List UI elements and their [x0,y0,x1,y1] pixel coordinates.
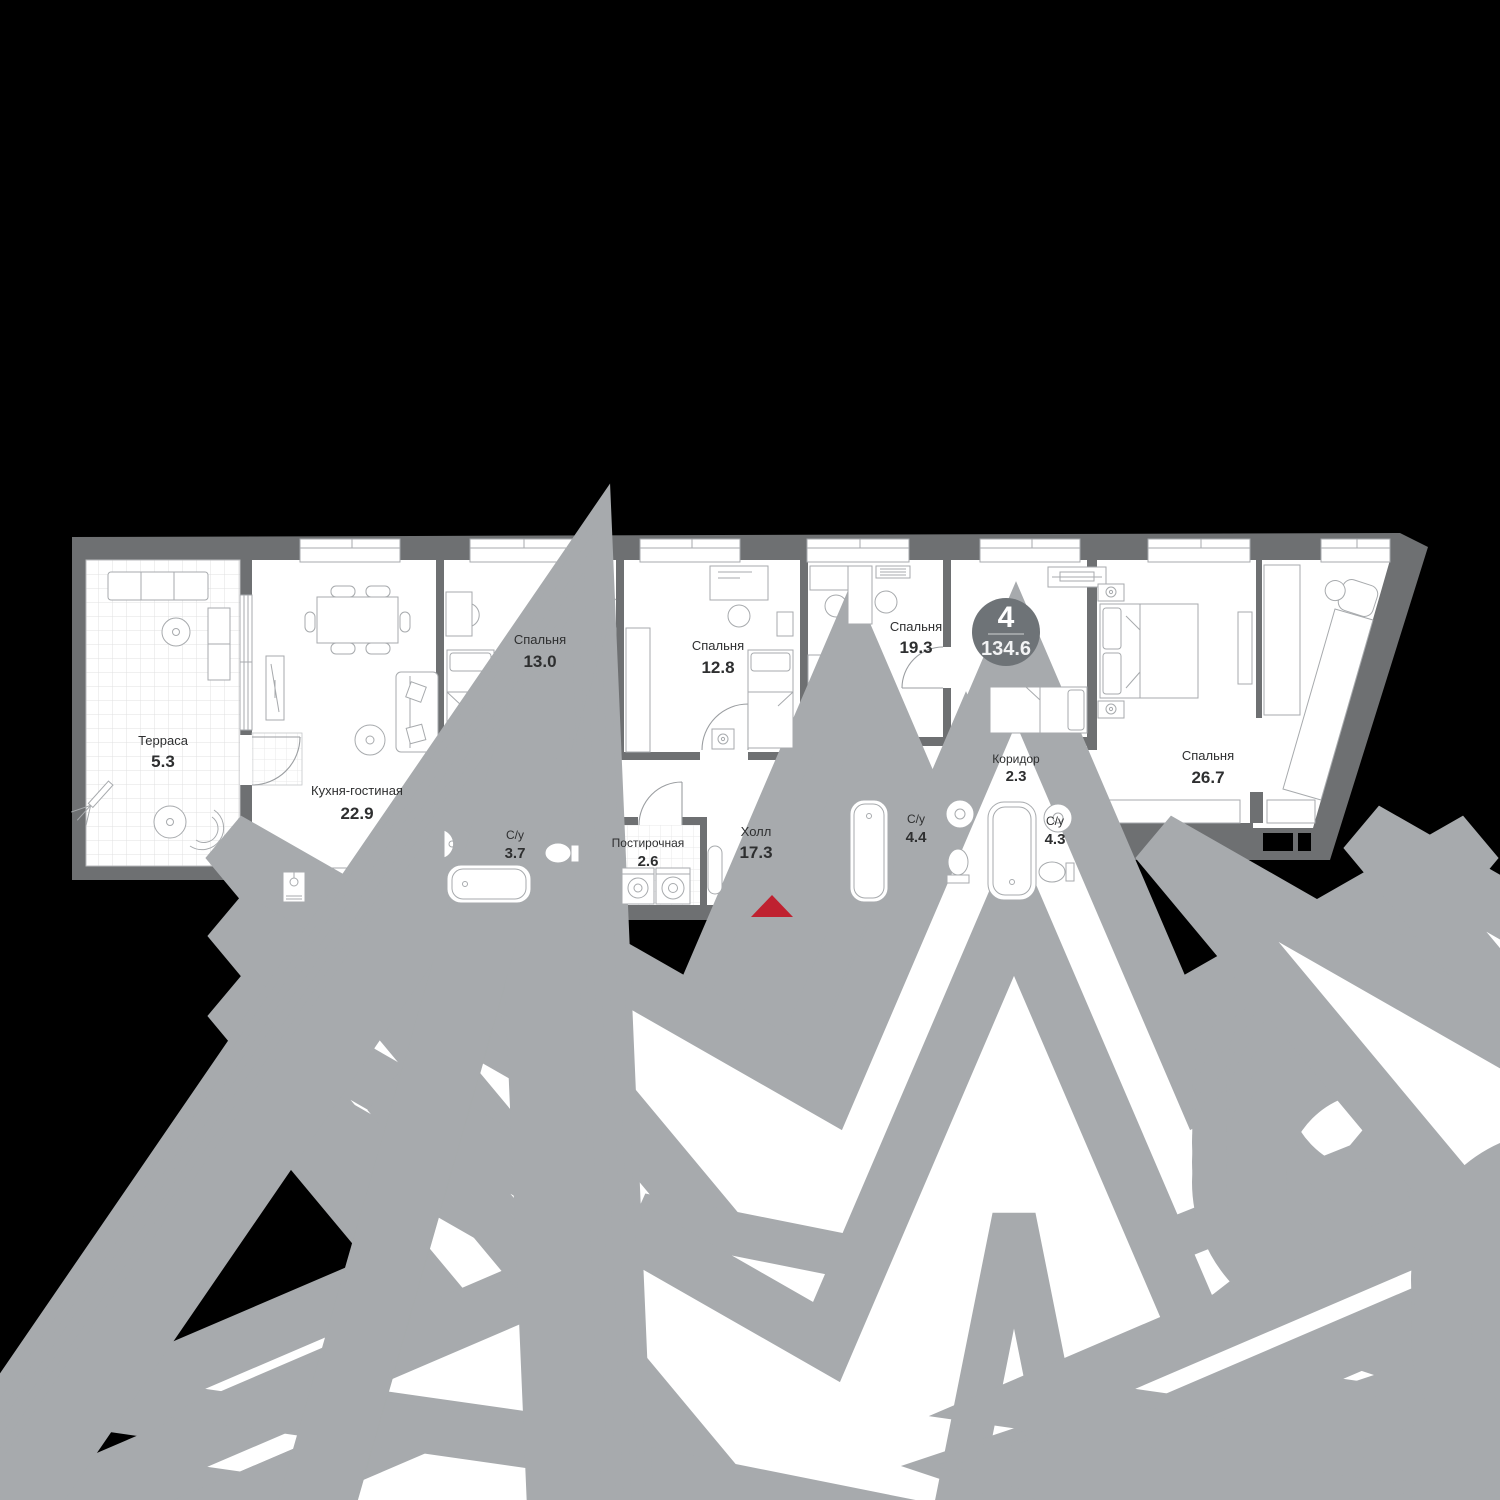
toilet-icon [1039,862,1074,882]
room-label-bedroom19: Спальня [890,619,942,634]
room-label-laundry: Постирочная [612,836,685,850]
room-label-bedroom13: Спальня [514,632,566,647]
total-area: 134.6 [981,638,1031,660]
window-icon [640,539,740,562]
room-area-bath37: 3.7 [505,845,526,862]
room-label-bedroom26: Спальня [1182,748,1234,763]
room-area-hall: 17.3 [739,843,772,862]
room-area-laundry: 2.6 [638,853,659,870]
room-label-bath43: С/у [1046,814,1064,828]
window-icon [980,539,1080,562]
bed-icon [990,687,1087,733]
room-label-bath37: С/у [506,828,524,842]
washing-machine-icon [622,868,654,904]
room-area-terrace: 5.3 [151,752,175,771]
round-table-icon [162,618,190,646]
dresser-icon [1238,612,1252,684]
bed-icon [748,650,793,748]
floor-plan: 4 134.6 Терраса 5.3 Кухня-гостиная 22.9 … [0,0,1500,1500]
room-label-corridor: Коридор [992,752,1040,766]
sofa-icon [108,572,208,600]
nightstand-icon [1098,584,1124,601]
room-label-hall: Холл [741,824,772,839]
laundry-furniture [622,868,690,904]
tv-console-icon [266,656,284,720]
room-area-corridor: 2.3 [1006,768,1027,785]
room-area-bedroom19: 19.3 [899,638,932,657]
washing-machine-icon [656,868,690,904]
shelf-icon [777,612,793,636]
wall-dressing-divider [1256,560,1262,718]
window-icon [300,539,400,562]
window-icon [807,539,909,562]
room-label-bedroom12: Спальня [692,638,744,653]
terrace-glazing [240,595,252,730]
bathtub-icon [850,800,888,902]
coffee-table-icon [355,725,385,755]
room-area-bath44: 4.4 [906,829,928,846]
room-label-bath44: С/у [907,812,925,826]
window-icon [1148,539,1250,562]
room-area-bedroom12: 12.8 [701,658,734,677]
toilet-icon [545,843,579,863]
sofa-icon [396,672,438,752]
tv-console-icon [1048,567,1106,587]
room-area-bedroom13: 13.0 [523,652,556,671]
room-area-bath43: 4.3 [1045,831,1066,848]
room-area-kitchen: 22.9 [340,804,373,823]
nightstand-icon [1098,701,1124,718]
bathtub-icon [988,802,1036,900]
bathtub-icon [447,865,531,903]
lounge-table-icon [154,806,186,838]
total-area-badge: 4 134.6 [972,598,1040,666]
room-label-terrace: Терраса [138,733,189,748]
window-icon [1321,539,1390,562]
room-label-kitchen: Кухня-гостиная [311,783,403,798]
cabinet-icon [708,846,722,894]
room-area-bedroom26: 26.7 [1191,768,1224,787]
rooms-count: 4 [998,601,1015,634]
nightstand-icon [712,729,734,749]
toilet-icon [947,849,969,883]
wall-nub [1250,792,1263,823]
double-bed-icon [1100,604,1198,698]
floor-plan-canvas: 4 134.6 Терраса 5.3 Кухня-гостиная 22.9 … [0,0,1500,1500]
